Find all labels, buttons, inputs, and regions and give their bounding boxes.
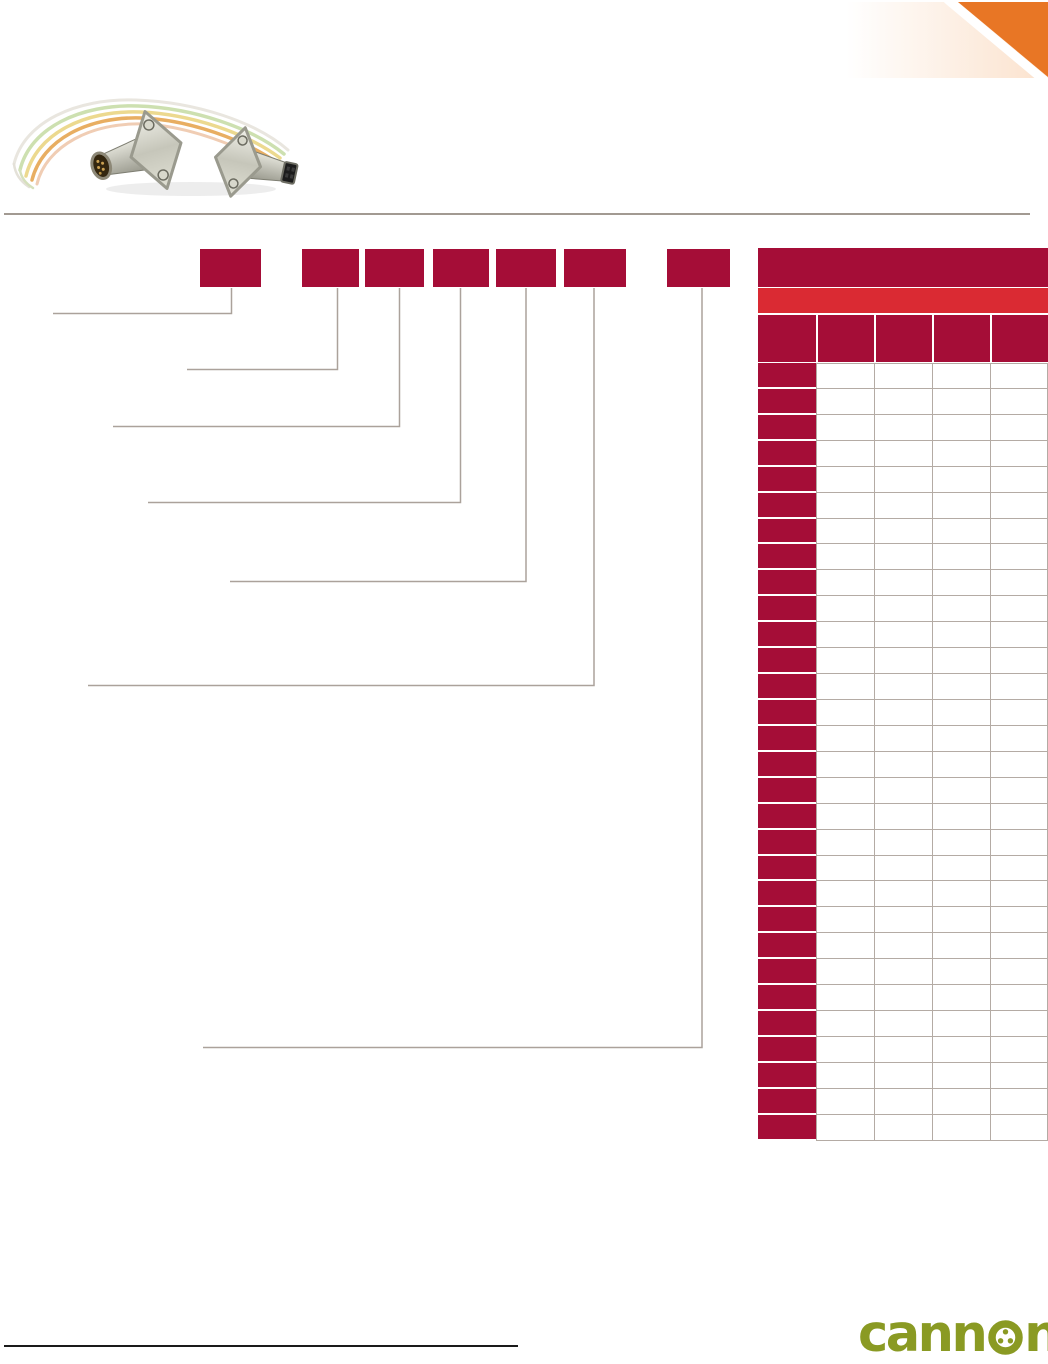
ordering-table <box>758 248 1048 1141</box>
data-cell <box>874 1115 932 1141</box>
data-cell <box>990 674 1048 700</box>
data-cell <box>990 1063 1048 1089</box>
data-cell <box>874 700 932 726</box>
data-cell <box>816 544 874 570</box>
part-number-box-3 <box>365 249 424 287</box>
row-label-cell <box>758 856 816 882</box>
data-cell <box>990 596 1048 622</box>
data-cell <box>990 544 1048 570</box>
data-cell <box>874 907 932 933</box>
data-cell <box>874 830 932 856</box>
row-label-cell <box>758 804 816 830</box>
data-cell <box>990 415 1048 441</box>
data-cell <box>816 752 874 778</box>
column-header-cell-1 <box>758 315 816 362</box>
data-cell <box>874 804 932 830</box>
product-photo <box>6 92 300 198</box>
data-cell <box>816 856 874 882</box>
cannon-logo: cann n <box>858 1313 1048 1357</box>
data-cell <box>932 959 990 985</box>
data-cell <box>816 570 874 596</box>
data-cell <box>932 622 990 648</box>
data-cell <box>816 907 874 933</box>
data-cell <box>816 1011 874 1037</box>
part-number-box-1 <box>200 249 261 287</box>
part-number-box-4 <box>433 249 489 287</box>
data-cell <box>816 778 874 804</box>
data-cell <box>816 648 874 674</box>
data-cell <box>990 881 1048 907</box>
table-title-band <box>758 248 1048 287</box>
column-header-cell-3 <box>876 315 932 362</box>
part-number-box-7 <box>667 249 730 287</box>
data-cell <box>816 415 874 441</box>
data-cell <box>816 1115 874 1141</box>
row-label-cell <box>758 363 816 389</box>
data-cell <box>990 726 1048 752</box>
data-cell <box>874 363 932 389</box>
data-cell <box>816 441 874 467</box>
table-subtitle-band <box>758 288 1048 313</box>
row-label-cell <box>758 700 816 726</box>
data-cell <box>932 1011 990 1037</box>
data-cell <box>874 389 932 415</box>
row-label-cell <box>758 648 816 674</box>
callout-line-5 <box>230 288 526 582</box>
data-cell <box>990 570 1048 596</box>
data-cell <box>932 415 990 441</box>
data-cell <box>932 752 990 778</box>
row-label-cell <box>758 389 816 415</box>
data-cell <box>874 674 932 700</box>
data-cell <box>932 1063 990 1089</box>
data-cell <box>816 726 874 752</box>
data-cell <box>932 1115 990 1141</box>
data-cell <box>874 856 932 882</box>
row-label-cell <box>758 1037 816 1063</box>
data-cell <box>874 570 932 596</box>
data-cell <box>990 519 1048 545</box>
data-cell <box>874 493 932 519</box>
data-cell <box>990 752 1048 778</box>
data-cell <box>932 1089 990 1115</box>
data-cell <box>874 778 932 804</box>
data-cell <box>932 519 990 545</box>
data-cell <box>990 622 1048 648</box>
micro-connector-cable-photo-icon <box>6 92 300 198</box>
data-cell <box>932 804 990 830</box>
orange-corner-ribbon-icon <box>846 2 1048 78</box>
data-cell <box>874 881 932 907</box>
data-cell <box>990 1011 1048 1037</box>
data-cell <box>816 467 874 493</box>
data-cell <box>932 363 990 389</box>
data-cell <box>874 933 932 959</box>
data-cell <box>932 1037 990 1063</box>
data-cell <box>874 726 932 752</box>
data-cell <box>990 1115 1048 1141</box>
data-cell <box>932 467 990 493</box>
data-cell <box>932 830 990 856</box>
data-cell <box>874 519 932 545</box>
data-cell <box>816 804 874 830</box>
data-cell <box>816 830 874 856</box>
data-cell <box>932 907 990 933</box>
data-cell <box>816 881 874 907</box>
table-header-row <box>758 315 1048 362</box>
callout-line-1 <box>53 288 232 314</box>
data-cell <box>932 570 990 596</box>
part-number-box-5 <box>496 249 556 287</box>
data-cell <box>874 622 932 648</box>
data-cell <box>816 1063 874 1089</box>
part-number-box-6 <box>564 249 626 287</box>
data-cell <box>874 596 932 622</box>
data-cell <box>990 700 1048 726</box>
data-cell <box>990 856 1048 882</box>
row-label-cell <box>758 881 816 907</box>
row-label-cell <box>758 570 816 596</box>
data-cell <box>816 933 874 959</box>
data-cell <box>990 830 1048 856</box>
data-cell <box>932 596 990 622</box>
data-cell <box>932 881 990 907</box>
data-cell <box>816 363 874 389</box>
callout-line-4 <box>148 288 461 503</box>
data-cell <box>874 415 932 441</box>
data-cell <box>932 856 990 882</box>
row-label-cell <box>758 830 816 856</box>
data-cell <box>932 726 990 752</box>
data-cell <box>990 389 1048 415</box>
data-cell <box>816 985 874 1011</box>
row-label-cell <box>758 622 816 648</box>
data-cell <box>874 1037 932 1063</box>
data-cell <box>874 441 932 467</box>
row-label-cell <box>758 1011 816 1037</box>
data-cell <box>990 804 1048 830</box>
data-cell <box>990 933 1048 959</box>
part-number-box-2 <box>302 249 359 287</box>
row-label-cell <box>758 959 816 985</box>
data-cell <box>990 648 1048 674</box>
data-cell <box>990 363 1048 389</box>
data-cell <box>816 1089 874 1115</box>
header-divider-rule <box>4 213 1030 215</box>
callout-line-6 <box>88 288 594 686</box>
data-cell <box>990 959 1048 985</box>
logo-text-suffix: n <box>1024 1313 1048 1357</box>
callout-line-2 <box>187 288 338 370</box>
row-label-cell <box>758 1063 816 1089</box>
data-cell <box>932 648 990 674</box>
data-cell <box>816 1037 874 1063</box>
row-label-cell <box>758 493 816 519</box>
data-cell <box>990 907 1048 933</box>
data-cell <box>990 467 1048 493</box>
data-cell <box>932 778 990 804</box>
row-label-cell <box>758 519 816 545</box>
data-cell <box>874 648 932 674</box>
row-label-cell <box>758 778 816 804</box>
data-cell <box>816 389 874 415</box>
data-cell <box>990 985 1048 1011</box>
row-label-cell <box>758 674 816 700</box>
row-label-cell <box>758 933 816 959</box>
data-cell <box>816 674 874 700</box>
row-label-cell <box>758 1115 816 1141</box>
column-header-cell-2 <box>818 315 874 362</box>
data-cell <box>990 493 1048 519</box>
row-label-cell <box>758 544 816 570</box>
data-cell <box>990 778 1048 804</box>
data-cell <box>874 467 932 493</box>
data-cell <box>932 700 990 726</box>
data-cell <box>874 985 932 1011</box>
callout-line-7 <box>203 288 702 1048</box>
data-cell <box>816 622 874 648</box>
data-cell <box>874 1011 932 1037</box>
data-cell <box>874 1063 932 1089</box>
column-header-cell-4 <box>934 315 990 362</box>
data-cell <box>990 1089 1048 1115</box>
callout-line-3 <box>113 288 400 427</box>
row-label-cell <box>758 907 816 933</box>
data-cell <box>874 544 932 570</box>
table-body-grid <box>758 363 1048 1141</box>
data-cell <box>932 674 990 700</box>
row-label-cell <box>758 467 816 493</box>
row-label-cell <box>758 752 816 778</box>
row-label-cell <box>758 441 816 467</box>
footer-rule <box>4 1345 518 1347</box>
data-cell <box>816 519 874 545</box>
data-cell <box>990 441 1048 467</box>
row-label-cell <box>758 985 816 1011</box>
row-label-cell <box>758 415 816 441</box>
data-cell <box>816 596 874 622</box>
data-cell <box>932 441 990 467</box>
data-cell <box>816 959 874 985</box>
data-cell <box>932 389 990 415</box>
data-cell <box>932 985 990 1011</box>
data-cell <box>816 493 874 519</box>
row-label-cell <box>758 1089 816 1115</box>
data-cell <box>932 933 990 959</box>
data-cell <box>874 959 932 985</box>
data-cell <box>874 1089 932 1115</box>
data-cell <box>874 752 932 778</box>
column-header-cell-5 <box>992 315 1048 362</box>
data-cell <box>932 493 990 519</box>
row-label-cell <box>758 596 816 622</box>
data-cell <box>816 700 874 726</box>
data-cell <box>932 544 990 570</box>
logo-text-prefix: cann <box>858 1313 985 1357</box>
data-cell <box>990 1037 1048 1063</box>
corner-banner <box>846 2 1048 78</box>
row-label-cell <box>758 726 816 752</box>
